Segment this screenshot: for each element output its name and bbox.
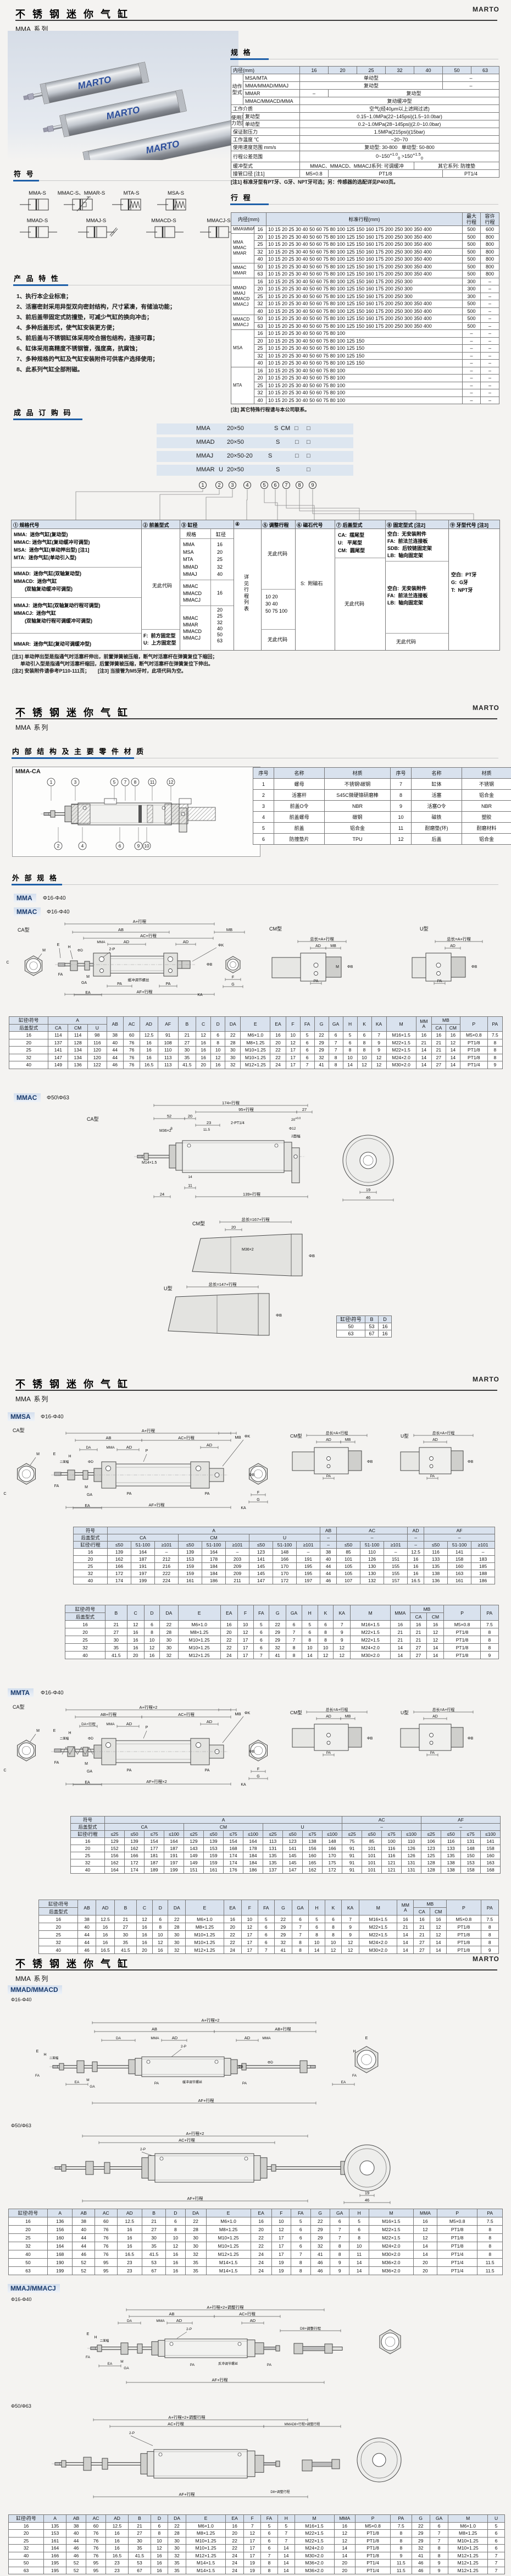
svg-text:19: 19 [366,1187,370,1192]
svg-text:ΦD: ΦD [268,2061,273,2065]
svg-text:KA: KA [241,1506,246,1510]
svg-text:M: M [85,1762,88,1766]
svg-text:11: 11 [150,780,155,785]
svg-text:8: 8 [134,780,137,785]
svg-text:AD: AD [432,1715,438,1719]
svg-text:20+0.0: 20+0.0 [291,1117,301,1122]
svg-text:MMA: MMA [106,1446,115,1450]
svg-text:G: G [257,1775,259,1779]
svg-text:FA: FA [58,973,63,977]
svg-text:10: 10 [145,844,149,849]
svg-text:PA: PA [326,1751,331,1755]
svg-text:缓冲调节螺丝: 缓冲调节螺丝 [128,977,150,982]
svg-text:AC+行程: AC+行程 [239,2311,255,2316]
svg-text:M14×1.5: M14×1.5 [142,1161,157,1165]
svg-text:PA: PA [267,2363,272,2367]
svg-text:2面幅: 2面幅 [291,1133,301,1138]
svg-text:A+行程×2+调整行程: A+行程×2+调整行程 [168,2414,205,2420]
svg-text:ΦB: ΦB [471,965,477,969]
svg-text:2-P: 2-P [181,2045,186,2049]
svg-text:A+行程×2+调整行程: A+行程×2+调整行程 [207,2304,244,2310]
svg-text:H: H [43,2053,46,2057]
svg-text:U型: U型 [420,926,429,932]
svg-text:D8+调整行程: D8+调整行程 [270,2490,290,2494]
svg-text:二面幅: 二面幅 [49,2056,59,2060]
svg-text:95+行程: 95+行程 [238,1107,254,1112]
svg-text:MMAD8+行程+调整行程: MMAD8+行程+调整行程 [285,2422,320,2426]
svg-text:AF+行程: AF+行程 [212,2377,228,2382]
svg-text:H: H [68,1731,71,1735]
svg-text:Φ12: Φ12 [289,1127,296,1131]
svg-text:MB: MB [330,944,336,948]
svg-text:ΦB: ΦB [367,1460,373,1464]
svg-text:AB: AB [105,1435,111,1440]
svg-text:2-P: 2-P [186,2327,192,2331]
svg-text:ΦB: ΦB [367,1737,373,1741]
svg-text:P: P [146,1449,148,1453]
svg-text:E: E [87,2332,90,2336]
svg-text:20: 20 [188,1114,192,1119]
svg-text:27: 27 [302,1107,307,1112]
svg-text:8: 8 [170,1127,173,1131]
svg-text:ΦK: ΦK [245,1435,251,1439]
svg-text:AB: AB [169,2311,174,2316]
svg-text:FA: FA [86,2355,91,2359]
svg-text:CM型: CM型 [192,1221,205,1226]
svg-text:F: F [257,1491,259,1495]
svg-text:A+行程×2: A+行程×2 [202,2017,220,2023]
svg-text:DA+行程: DA+行程 [81,1721,96,1726]
svg-text:23: 23 [207,1120,211,1125]
svg-text:ΦD: ΦD [88,1737,93,1741]
svg-text:AC+行程: AC+行程 [140,933,157,938]
svg-text:E: E [36,2050,39,2054]
svg-text:9: 9 [137,844,140,849]
svg-text:AD: AD [326,1715,331,1719]
svg-text:ΦB: ΦB [468,1460,474,1464]
svg-text:MB: MB [235,1711,241,1716]
svg-text:AF+行程: AF+行程 [198,2098,214,2103]
svg-text:PA: PA [166,982,171,986]
svg-text:KA: KA [241,1783,246,1787]
svg-text:U型: U型 [164,1286,173,1291]
svg-text:FA: FA [35,2074,40,2078]
svg-text:M: M [85,1485,88,1489]
svg-text:U型: U型 [401,1433,409,1439]
svg-text:H: H [68,1455,71,1458]
svg-text:M: M [86,2078,89,2082]
svg-text:11: 11 [188,1183,192,1188]
svg-text:U型: U型 [401,1710,409,1715]
svg-text:AD: AD [207,1443,213,1447]
svg-text:PA: PA [437,979,442,983]
svg-text:11.5: 11.5 [203,1128,210,1132]
svg-text:E: E [53,1452,56,1456]
svg-text:F: F [232,976,234,979]
svg-text:AC+行程: AC+行程 [178,1435,195,1440]
svg-text:FA: FA [54,1484,59,1488]
svg-text:GA: GA [81,981,87,985]
svg-text:12: 12 [169,780,174,785]
svg-text:AF+行程: AF+行程 [187,2195,203,2201]
svg-text:ΦB: ΦB [468,1737,474,1741]
svg-text:CM型: CM型 [290,1433,302,1439]
svg-text:EA: EA [341,2080,346,2084]
svg-text:AF+行程: AF+行程 [179,2491,195,2497]
svg-text:CM型: CM型 [290,1710,302,1715]
svg-text:6: 6 [119,844,121,849]
svg-text:总长=147+行程: 总长=147+行程 [208,1281,237,1287]
svg-text:AB: AB [118,927,124,932]
svg-text:AD: AD [124,939,130,944]
svg-text:反冲调节螺丝: 反冲调节螺丝 [218,2362,238,2366]
svg-text:AD: AD [126,1445,132,1450]
svg-text:MB: MB [226,927,232,932]
svg-text:D8+调整行程: D8+调整行程 [300,2326,321,2331]
svg-text:CA型: CA型 [13,1428,25,1433]
svg-text:7: 7 [124,780,127,785]
svg-text:AF+行程: AF+行程 [149,1502,165,1507]
svg-text:PA: PA [430,1751,435,1755]
svg-text:A+行程×2: A+行程×2 [140,1704,158,1710]
svg-text:PA: PA [154,2082,159,2085]
svg-text:AD: AD [126,1721,132,1726]
svg-text:AD: AD [176,2318,182,2323]
svg-text:总长=A+行程: 总长=A+行程 [310,936,334,942]
svg-text:2-P: 2-P [140,2148,146,2151]
svg-text:CA型: CA型 [87,1116,99,1122]
svg-text:PA: PA [205,1492,210,1496]
svg-text:AC+行程: AC+行程 [179,2137,195,2143]
svg-text:2-PT1/4: 2-PT1/4 [231,1121,245,1125]
svg-text:M: M [336,965,339,969]
svg-text:ΦB: ΦB [276,1313,282,1318]
svg-text:PA: PA [242,2082,247,2085]
svg-text:MMA: MMA [262,2036,271,2040]
svg-text:MMACJ-S: MMACJ-S [207,218,230,224]
svg-text:总长=A+行程: 总长=A+行程 [326,1707,348,1712]
svg-text:A+行程×2: A+行程×2 [186,2131,204,2136]
svg-text:2-P: 2-P [129,2431,135,2435]
svg-text:20: 20 [231,1225,236,1230]
svg-text:AD: AD [450,944,456,948]
svg-text:AD: AD [250,2318,256,2323]
svg-text:ΦB: ΦB [249,1750,255,1754]
svg-text:DA: DA [116,2036,121,2040]
svg-text:EA: EA [108,2362,113,2366]
svg-text:GA: GA [90,2085,95,2089]
svg-text:GA: GA [124,2366,129,2370]
svg-text:PA: PA [430,1474,435,1478]
svg-text:MMA: MMA [151,2036,159,2040]
svg-text:总长=A+行程: 总长=A+行程 [447,936,471,942]
svg-text:AC+行程: AC+行程 [178,1711,195,1717]
svg-text:EA: EA [75,2080,80,2084]
svg-text:A+行程: A+行程 [142,1428,155,1433]
svg-text:AD: AD [207,1719,213,1724]
svg-text:AD: AD [172,2035,178,2040]
svg-text:CA型: CA型 [13,1704,25,1710]
svg-text:E: E [57,943,60,947]
svg-text:19: 19 [365,2190,369,2195]
svg-text:MMA: MMA [106,1722,115,1726]
svg-text:二面幅: 二面幅 [60,1736,69,1741]
svg-text:ΦB: ΦB [249,1473,255,1477]
svg-text:总长=A+行程: 总长=A+行程 [326,1430,348,1435]
svg-text:P: P [146,1726,148,1730]
svg-text:M36×2: M36×2 [242,1248,254,1252]
svg-text:MMA: MMA [97,940,105,944]
svg-text:ΦB: ΦB [347,965,353,969]
svg-text:AD: AD [326,1438,331,1442]
svg-text:PA: PA [127,1769,132,1773]
svg-text:CA型: CA型 [18,927,30,933]
svg-text:KA: KA [197,993,203,997]
svg-text:M: M [42,949,46,953]
svg-text:GA: GA [87,1493,92,1497]
svg-text:ΦD: ΦD [77,949,83,953]
svg-text:M36×2: M36×2 [159,1129,171,1133]
svg-text:AB+行程: AB+行程 [275,2026,291,2032]
svg-text:3: 3 [74,780,77,785]
svg-text:PA: PA [190,2363,195,2367]
svg-text:PA: PA [314,979,319,983]
svg-text:E: E [365,2036,368,2040]
svg-text:MB: MB [235,1435,241,1440]
svg-text:M: M [120,2360,123,2364]
svg-text:ΦB: ΦB [309,1253,315,1258]
svg-text:E: E [53,1729,56,1733]
svg-text:C: C [3,1769,6,1773]
svg-text:二面幅: 二面幅 [100,2338,109,2343]
svg-text:MB: MB [345,1715,351,1719]
svg-text:2-P: 2-P [109,948,115,951]
svg-text:M: M [36,1729,40,1733]
svg-text:ΦK: ΦK [218,944,224,948]
svg-text:PA: PA [326,1474,331,1478]
svg-text:AB: AB [152,2027,157,2032]
svg-text:AD: AD [315,944,321,948]
svg-text:52: 52 [167,1114,171,1119]
svg-text:总长=A+行程: 总长=A+行程 [432,1430,455,1435]
svg-text:ΦB: ΦB [207,963,213,967]
svg-text:F: F [257,1768,259,1771]
svg-text:ΦK: ΦK [245,1711,251,1715]
svg-text:ΦD: ΦD [88,1460,93,1464]
svg-text:DA: DA [86,1446,91,1450]
svg-text:G: G [257,1498,259,1502]
svg-text:C: C [3,1492,6,1496]
svg-text:24: 24 [160,1192,164,1197]
svg-text:AF+行程×2: AF+行程×2 [146,1779,167,1784]
svg-text:AB+行程: AB+行程 [101,1711,117,1717]
svg-text:174+行程: 174+行程 [222,1100,240,1105]
svg-text:H: H [68,945,70,949]
svg-text:MB: MB [345,1438,351,1442]
svg-text:C: C [6,961,9,965]
svg-text:M: M [86,975,90,979]
svg-text:DA: DA [127,2319,132,2323]
svg-text:139+行程: 139+行程 [243,1191,260,1197]
svg-text:缓冲调节螺丝: 缓冲调节螺丝 [182,2080,202,2084]
svg-text:FA: FA [352,2074,357,2078]
svg-text:H: H [94,2336,97,2340]
svg-text:PA: PA [117,982,122,986]
svg-text:A+行程: A+行程 [133,918,147,924]
svg-text:G: G [231,983,234,987]
svg-text:AC+行程: AC+行程 [168,2421,184,2426]
svg-text:MMA: MMA [156,2319,165,2323]
svg-text:二面幅: 二面幅 [60,1460,69,1464]
svg-text:AD: AD [432,1438,438,1442]
svg-text:CM型: CM型 [269,926,282,932]
svg-text:4: 4 [81,844,84,849]
svg-text:AF+行程: AF+行程 [137,989,153,994]
svg-text:M: M [36,1452,40,1456]
svg-text:总长=A+行程: 总长=A+行程 [432,1707,455,1712]
svg-text:FA: FA [54,1761,59,1765]
svg-text:PA: PA [205,1769,210,1773]
svg-text:GA: GA [87,1770,92,1774]
svg-text:2: 2 [57,844,60,849]
svg-text:46: 46 [366,1195,370,1200]
svg-text:5: 5 [113,780,116,785]
svg-text:1: 1 [50,780,53,785]
svg-text:AD: AD [183,939,189,944]
svg-text:PA: PA [127,1492,132,1496]
svg-text:ΦB: ΦB [238,2065,243,2069]
svg-text:14: 14 [188,1175,192,1179]
svg-text:AD: AD [245,2035,251,2040]
svg-text:总长=167+行程: 总长=167+行程 [241,1217,270,1222]
svg-text:46: 46 [365,2198,369,2203]
